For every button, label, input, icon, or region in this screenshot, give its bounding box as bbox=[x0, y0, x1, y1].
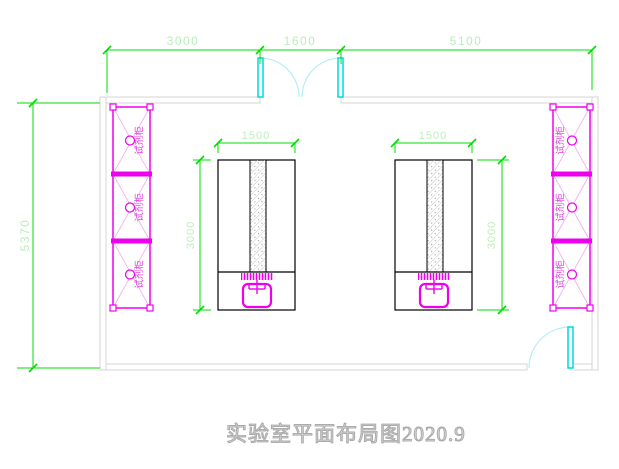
door-swing-arc bbox=[260, 58, 299, 97]
cabinet-label: 试剂柜 bbox=[555, 193, 567, 222]
cabinet-knob bbox=[126, 136, 135, 145]
wall-left bbox=[100, 97, 106, 370]
drawing-title: 实验室平面布局图2020.9 bbox=[226, 418, 606, 448]
cabinet: 试剂柜 bbox=[553, 174, 590, 241]
dim-label-bench-left-width: 1500 bbox=[242, 130, 270, 142]
door-leaf bbox=[568, 327, 573, 368]
cabinet-label: 试剂柜 bbox=[555, 260, 567, 289]
dim-top bbox=[103, 46, 596, 93]
sink-grate bbox=[418, 273, 450, 280]
cabinet-column-right: 试剂柜 试剂柜 试剂柜 bbox=[550, 104, 593, 311]
dim-label-5100: 5100 bbox=[450, 34, 483, 48]
cabinet: 试剂柜 bbox=[553, 241, 590, 308]
door-bottom-right bbox=[529, 327, 573, 368]
sink-grate bbox=[241, 273, 273, 280]
cabinet: 试剂柜 bbox=[113, 241, 150, 308]
cabinet: 试剂柜 bbox=[113, 174, 150, 241]
sink bbox=[241, 273, 273, 307]
floor-plan-drawing: 试剂柜 试剂柜 试剂柜 bbox=[0, 0, 619, 469]
double-door-top bbox=[258, 58, 343, 97]
cabinet-label: 试剂柜 bbox=[134, 126, 146, 155]
cabinet-knob bbox=[568, 203, 577, 212]
cabinet-label: 试剂柜 bbox=[134, 260, 146, 289]
reagent-shelf-hatch bbox=[427, 160, 443, 272]
reagent-shelf-hatch bbox=[250, 160, 266, 272]
lab-bench-left bbox=[218, 160, 295, 310]
room-walls bbox=[100, 97, 598, 370]
lab-bench-right bbox=[395, 160, 472, 310]
cabinet-column-left: 试剂柜 试剂柜 试剂柜 bbox=[110, 104, 153, 311]
cabinet-knob bbox=[126, 270, 135, 279]
wall-right bbox=[592, 97, 598, 370]
cabinet-knob bbox=[568, 136, 577, 145]
door-swing-arc bbox=[529, 327, 570, 368]
cabinet-knob bbox=[568, 270, 577, 279]
cabinet-label: 试剂柜 bbox=[134, 193, 146, 222]
dim-label-bench-left-depth: 3000 bbox=[185, 221, 197, 249]
dim-label-5370: 5370 bbox=[18, 219, 32, 252]
dim-label-bench-right-depth: 3000 bbox=[486, 221, 498, 249]
dim-label-bench-right-width: 1500 bbox=[419, 130, 447, 142]
wall-bottom-left-segment bbox=[100, 364, 527, 370]
sink bbox=[418, 273, 450, 307]
wall-top-right-segment bbox=[341, 97, 598, 103]
cabinet-knob bbox=[126, 203, 135, 212]
cabinet: 试剂柜 bbox=[553, 107, 590, 174]
floor-plan-canvas: 试剂柜 试剂柜 试剂柜 bbox=[0, 0, 619, 469]
cabinet: 试剂柜 bbox=[113, 107, 150, 174]
dim-label-3000: 3000 bbox=[167, 34, 200, 48]
cabinet-label: 试剂柜 bbox=[555, 126, 567, 155]
dim-label-1600: 1600 bbox=[284, 34, 317, 48]
door-swing-arc bbox=[302, 58, 341, 97]
wall-top-left-segment bbox=[100, 97, 260, 103]
